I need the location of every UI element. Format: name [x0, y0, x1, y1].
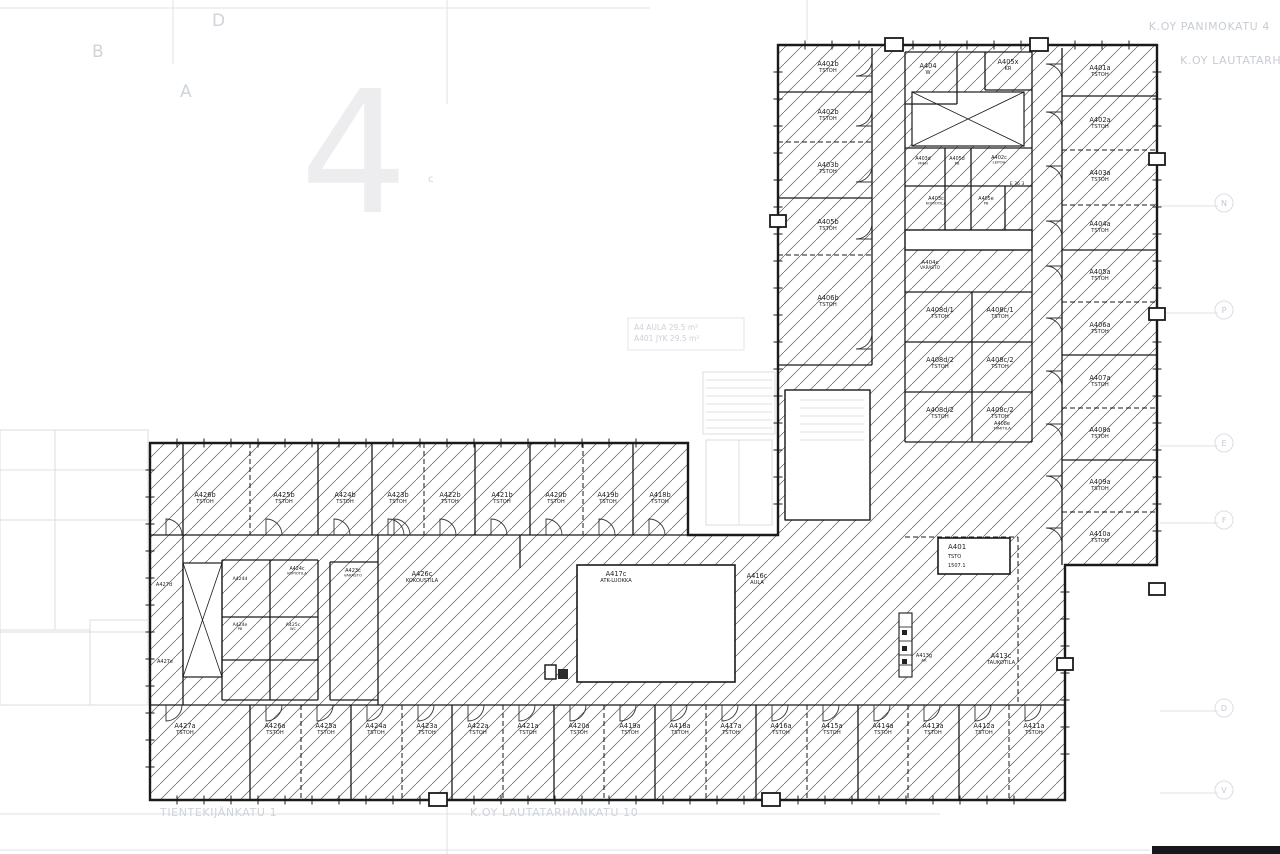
window-break	[770, 215, 786, 227]
room-label: A423a	[416, 722, 437, 730]
room-sublabel: TSTOH	[771, 730, 790, 736]
room-sublabel: TSTOH	[468, 730, 487, 736]
grid-letter: B	[92, 42, 104, 62]
room-sublabel: ATK-LUOKKA	[600, 578, 632, 584]
room-label: A424a	[365, 722, 386, 730]
grid-marker-letter: D	[1221, 704, 1227, 713]
watermark-digit: 4	[300, 55, 408, 253]
room-label: A426a	[264, 722, 285, 730]
grid-marker-letter: F	[1222, 516, 1227, 525]
room-label: A408d/2	[926, 356, 954, 364]
room-sublabel: TSTOH	[818, 68, 837, 74]
room-label: A407a	[1089, 374, 1110, 382]
room-label: A420b	[545, 491, 566, 499]
room-label: A417a	[720, 722, 741, 730]
room-sublabel: TSTOH	[974, 730, 993, 736]
room-sublabel: W	[925, 70, 930, 76]
window-break	[885, 38, 903, 51]
room-label: A401a	[1089, 64, 1110, 72]
room-label: A403b	[817, 161, 838, 169]
room-label: A410a	[1089, 530, 1110, 538]
room-label: A404	[919, 62, 936, 70]
room-label: A419b	[597, 491, 618, 499]
room-sublabel: TSTOH	[316, 730, 335, 736]
room-sublabel: TSTOH	[822, 730, 841, 736]
room-label: A424d	[233, 576, 248, 582]
room-label: A424b	[334, 491, 355, 499]
room-label: A418a	[669, 722, 690, 730]
floor-plan-drawing: 4BDAcNPEFDVA4 AULA 29.5 m²A401 JYK 29.5 …	[0, 0, 1280, 854]
room-label: A412a	[973, 722, 994, 730]
room-label: A408c/1	[986, 306, 1013, 314]
room-label: A427d	[156, 582, 172, 588]
room-label: A421a	[517, 722, 538, 730]
room-sublabel: TSTOH	[569, 730, 588, 736]
room-label: A402b	[817, 108, 838, 116]
room-label: A405b	[817, 218, 838, 226]
room-sublabel: TSTOH	[818, 302, 837, 308]
room-label: A415a	[821, 722, 842, 730]
room-sublabel: TSTOH	[546, 499, 565, 505]
room-sublabel: TSTOH	[1090, 177, 1109, 183]
room-sublabel: LEPOH	[993, 160, 1006, 165]
cabinet-strip	[899, 613, 912, 677]
room-label: A411a	[1023, 722, 1044, 730]
room-sublabel: MIEH	[918, 161, 928, 165]
room-label: A405x	[998, 58, 1019, 66]
window-break	[1149, 153, 1165, 165]
window-break	[1149, 583, 1165, 595]
room-sublabel: AULA	[750, 580, 764, 586]
room-sublabel: TSTOH	[366, 730, 385, 736]
room-sublabel: TSTOH	[930, 364, 949, 370]
room-label: A414a	[872, 722, 893, 730]
title-box-text: A401	[948, 543, 966, 551]
room-label: A408c/2	[986, 406, 1013, 414]
room-label: A406b	[817, 294, 838, 302]
room-label: A401b	[817, 60, 838, 68]
window-break	[1149, 308, 1165, 320]
room-sublabel: TSTOH	[598, 499, 617, 505]
room-label: A427e	[157, 659, 173, 665]
street-label-bottom-left: TIENTEKIJÄNKATU 1	[160, 806, 277, 819]
service-corridor	[905, 230, 1032, 250]
grid-letter: A	[180, 82, 192, 102]
room-label: A403a	[1089, 169, 1110, 177]
room-sublabel: TSTOH	[440, 499, 459, 505]
room-sublabel: TSTOH	[930, 314, 949, 320]
room-sublabel: TSTOH	[1090, 124, 1109, 130]
grid-letter: c	[428, 174, 434, 185]
room-sublabel: AK	[921, 658, 927, 663]
room-sublabel: TIIMITILA	[992, 426, 1011, 431]
room-sublabel: TSTOH	[1090, 228, 1109, 234]
room-label: A419a	[619, 722, 640, 730]
room-sublabel: TSTOH	[670, 730, 689, 736]
room-sublabel: WC	[290, 627, 297, 631]
room-label: A426c	[412, 570, 433, 578]
room-sublabel: PB	[955, 161, 960, 165]
room-label: A406a	[1089, 321, 1110, 329]
area-note-line1: A4 AULA 29.5 m²	[634, 323, 698, 332]
room-label: A408a	[1089, 426, 1110, 434]
estate-label-lautatarhanka: K.OY LAUTATARHANKA	[1180, 54, 1280, 67]
room-label: A404a	[1089, 220, 1110, 228]
window-break	[1030, 38, 1048, 51]
room-sublabel: TSTOH	[923, 730, 942, 736]
stair-core	[785, 390, 870, 520]
window-break	[762, 793, 780, 806]
room-label: A405a	[1089, 268, 1110, 276]
room-sublabel: TSTOH	[620, 730, 639, 736]
room-label: A413c	[991, 652, 1012, 660]
area-note-line2: A401 JYK 29.5 m²	[634, 334, 699, 343]
room-label: A416c	[747, 572, 768, 580]
room-sublabel: TSTOH	[1090, 276, 1109, 282]
room-label: A422a	[467, 722, 488, 730]
room-sublabel: TSTOH	[335, 499, 354, 505]
room-sublabel: KOKOUSTILA	[406, 578, 439, 584]
room-label: A427a	[174, 722, 195, 730]
room-label: A422b	[439, 491, 460, 499]
room-sublabel: KOPIOTILA	[287, 571, 307, 575]
room-sublabel: TSTOH	[873, 730, 892, 736]
fixture-dark	[558, 669, 568, 679]
room-label: A420a	[568, 722, 589, 730]
room-sublabel: TSTOH	[1090, 434, 1109, 440]
room-sublabel: TSTOH	[417, 730, 436, 736]
room-sublabel: TSTOH	[195, 499, 214, 505]
title-box-text: TSTO	[947, 554, 961, 560]
room-label: A408d/1	[926, 306, 954, 314]
room-label: A425a	[315, 722, 336, 730]
room-sublabel: TSTOH	[650, 499, 669, 505]
room-label: A413a	[922, 722, 943, 730]
room-label: E 36 3	[1010, 181, 1025, 187]
room-label: A423b	[387, 491, 408, 499]
room-sublabel: TSTOH	[1090, 329, 1109, 335]
room-sublabel: TSTOH	[1090, 486, 1109, 492]
room-sublabel: TSTOH	[492, 499, 511, 505]
fixture-box	[545, 665, 556, 679]
sheet-edge-bar	[1152, 846, 1280, 854]
estate-label-panimokatu: K.OY PANIMOKATU 4	[1149, 20, 1270, 33]
room-sublabel: TSTOH	[1090, 382, 1109, 388]
room-label: A416a	[770, 722, 791, 730]
street-label-bottom-center: K.OY LAUTATARHANKATU 10	[470, 806, 638, 819]
room-sublabel: TSTOH	[990, 364, 1009, 370]
room-sublabel: TSTOH	[930, 414, 949, 420]
room-sublabel: TSTOH	[818, 226, 837, 232]
room-sublabel: TAUKOTILA	[986, 660, 1016, 666]
room-sublabel: TSTOH	[265, 730, 284, 736]
room-label: A408d/2	[926, 406, 954, 414]
room-label: A402a	[1089, 116, 1110, 124]
grid-marker-letter: N	[1221, 199, 1227, 208]
grid-marker-letter: P	[1222, 306, 1227, 315]
grid-letter: D	[212, 11, 225, 31]
room-sublabel: TSTOH	[990, 314, 1009, 320]
room-label: A421b	[491, 491, 512, 499]
room-sublabel: TSTOH	[518, 730, 537, 736]
room-sublabel: TSTOH	[818, 116, 837, 122]
room-label: A425b	[273, 491, 294, 499]
title-box-text: 1507.1	[948, 563, 966, 569]
room-label: A408c/2	[986, 356, 1013, 364]
grid-marker-letter: E	[1221, 439, 1226, 448]
room-sublabel: TSTOH	[990, 414, 1009, 420]
window-break	[1057, 658, 1073, 670]
room-sublabel: VARASTO	[920, 265, 941, 271]
room-label: A418b	[649, 491, 670, 499]
room-sublabel: TSTOH	[818, 169, 837, 175]
room-sublabel: TSTOH	[274, 499, 293, 505]
room-sublabel: TSTOH	[1024, 730, 1043, 736]
room-sublabel: PB	[238, 627, 243, 631]
grid-marker-letter: V	[1221, 786, 1227, 795]
room-sublabel: TSTOH	[1090, 72, 1109, 78]
room-sublabel: KOPIOTILA	[926, 201, 947, 206]
room-sublabel: TSTOH	[1090, 538, 1109, 544]
room-sublabel: KR	[1005, 66, 1012, 72]
room-sublabel: VARASTO	[344, 573, 362, 578]
room-sublabel: TSTOH	[721, 730, 740, 736]
room-sublabel: PB	[984, 201, 989, 205]
room-label: A409a	[1089, 478, 1110, 486]
room-label: A417c	[606, 570, 627, 578]
room-sublabel: TSTOH	[175, 730, 194, 736]
window-break	[429, 793, 447, 806]
room-label: A426b	[194, 491, 215, 499]
floor-plan-canvas: 4BDAcNPEFDVA4 AULA 29.5 m²A401 JYK 29.5 …	[0, 0, 1280, 854]
room-sublabel: TSTOH	[388, 499, 407, 505]
